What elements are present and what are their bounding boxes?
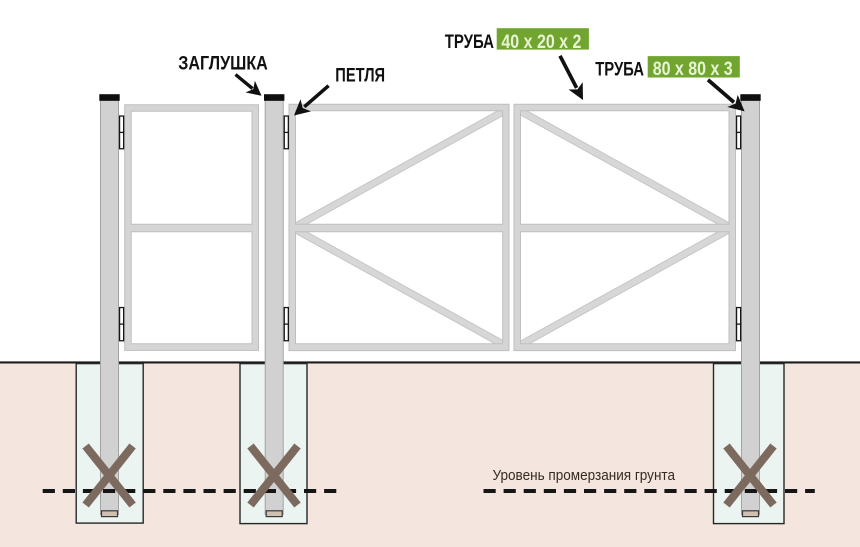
svg-text:ПЕТЛЯ: ПЕТЛЯ <box>335 66 385 87</box>
svg-text:80 x 80 x 3: 80 x 80 x 3 <box>653 59 733 80</box>
svg-text:ТРУБА: ТРУБА <box>445 32 495 53</box>
svg-text:ТРУБА: ТРУБА <box>595 60 644 81</box>
svg-text:40 x 20 x 2: 40 x 20 x 2 <box>501 32 581 53</box>
svg-text:ЗАГЛУШКА: ЗАГЛУШКА <box>178 53 268 74</box>
svg-text:Уровень промерзания грунта: Уровень промерзания грунта <box>493 467 676 484</box>
